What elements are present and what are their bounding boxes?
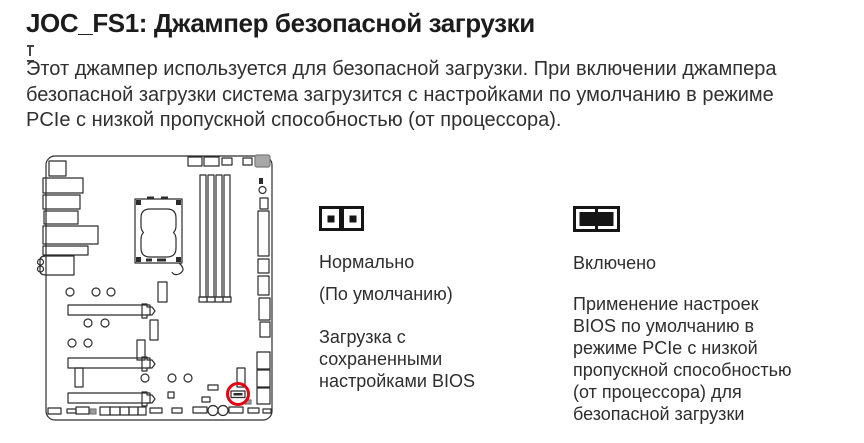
description-line: настройками BIOS [319,370,519,392]
description-line: (от процессора) для [573,381,823,403]
description-line: безопасной загрузки [573,403,823,425]
bottom-headers [48,406,271,416]
option-normal: Нормально (По умолчанию) Загрузка с сохр… [319,206,519,392]
description-line: сохраненными [319,348,519,370]
intro-line-1: Этот джампер используется для безопасной… [26,57,776,83]
intro-paragraph: Этот джампер используется для безопасной… [26,57,776,134]
intro-line-3: PCIe с низкой пропускной способностью (о… [26,108,776,134]
small-headers [168,385,218,402]
description-line: Применение настроек [573,293,823,315]
manual-page: JOC_FS1: Джампер безопасной загрузки Это… [0,0,864,443]
option-enabled: Включено Применение настроек BIOS по умо… [573,206,823,425]
m2-connectors [75,282,245,387]
option-enabled-label: Включено [573,253,823,274]
description-line: пропускной способностью [573,359,823,381]
top-headers [188,155,270,167]
description-line: BIOS по умолчанию в [573,315,823,337]
right-edge-connectors [257,178,270,404]
option-normal-sublabel: (По умолчанию) [319,284,519,305]
cpu-socket [135,197,183,275]
jumper-closed-icon [573,206,620,232]
option-normal-description: Загрузка с сохраненными настройками BIOS [319,326,519,392]
description-line: режиме PCIe с низкой [573,337,823,359]
dimm-slots [199,175,231,302]
motherboard-diagram [30,150,280,442]
description-line: Загрузка с [319,326,519,348]
page-title: JOC_FS1: Джампер безопасной загрузки [26,8,535,39]
option-enabled-description: Применение настроек BIOS по умолчанию в … [573,293,823,425]
motherboard-diagram-svg [30,150,280,442]
intro-line-2: безопасной загрузки система загрузится с… [26,83,776,109]
option-normal-label: Нормально [319,252,519,273]
jumper-open-icon [319,206,364,231]
pcie-slots [68,304,155,406]
